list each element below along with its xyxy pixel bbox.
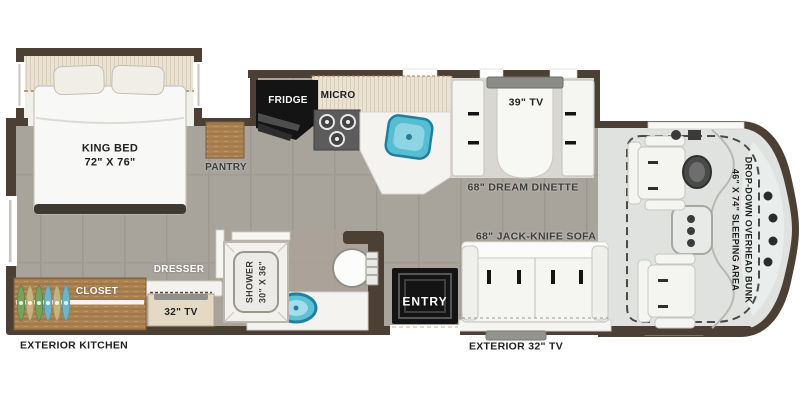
console-knob bbox=[687, 215, 695, 223]
king-bed-label: KING BED 72" X 76" bbox=[82, 142, 138, 170]
tv-32-screen bbox=[154, 294, 208, 300]
shower-label-line2: 30" X 36" bbox=[256, 261, 269, 303]
exterior-kitchen-label: EXTERIOR KITCHEN bbox=[20, 339, 128, 352]
cab-top-window bbox=[648, 122, 744, 129]
pantry-cabinet bbox=[206, 122, 244, 158]
driver-seat bbox=[628, 136, 685, 210]
bunk-label: DROP-DOWN OVERHEAD BUNK 46" X 74" SLEEPI… bbox=[729, 157, 754, 303]
shower-glass-wall bbox=[232, 232, 290, 240]
pantry-label: PANTRY bbox=[205, 162, 247, 175]
window-glass-line bbox=[9, 200, 12, 262]
shower-label-line1: SHOWER bbox=[243, 261, 256, 303]
dinette-label: 68" DREAM DINETTE bbox=[467, 181, 578, 194]
sofa-backrest bbox=[462, 242, 608, 258]
console-knob bbox=[687, 227, 695, 235]
sink-drain bbox=[294, 306, 299, 311]
pillow bbox=[54, 65, 105, 95]
bunk-label-line2: 46" X 74" SLEEPING AREA bbox=[729, 157, 742, 303]
toilet-tank bbox=[366, 252, 378, 285]
bunk-label-line1: DROP-DOWN OVERHEAD BUNK bbox=[742, 157, 755, 303]
closet-label: CLOSET bbox=[76, 286, 118, 299]
cab-vent-icon bbox=[671, 130, 681, 140]
entry-label: ENTRY bbox=[402, 295, 447, 310]
dinette-bench-left bbox=[452, 80, 484, 176]
bed-slideout-top-wall bbox=[16, 48, 202, 56]
tv39-label: 39" TV bbox=[509, 96, 544, 109]
toilet bbox=[333, 249, 371, 287]
cab-monitor-icon bbox=[688, 130, 701, 140]
sofa-armrest bbox=[592, 246, 608, 320]
fridge-label: FRIDGE bbox=[268, 95, 308, 108]
king-bed-label-line2: 72" X 76" bbox=[82, 156, 138, 170]
tv32-label: 32" TV bbox=[164, 307, 197, 320]
steering-wheel-hub bbox=[689, 162, 705, 182]
bed-foot-rail bbox=[34, 204, 186, 214]
dinette-bench-right bbox=[562, 80, 594, 176]
sofa-armrest bbox=[462, 246, 478, 320]
kitchen-sink bbox=[384, 114, 433, 160]
exterior-tv-screen bbox=[486, 331, 546, 340]
window-glass-line bbox=[19, 64, 21, 106]
sofa-label: 68" JACK-KNIFE SOFA bbox=[476, 230, 596, 243]
pillow bbox=[112, 65, 165, 95]
king-bed-label-line1: KING BED bbox=[82, 142, 138, 156]
exterior-tv-label: EXTERIOR 32" TV bbox=[469, 340, 563, 353]
dresser-label: DRESSER bbox=[154, 264, 204, 277]
bath-door bbox=[216, 230, 224, 278]
console-knob bbox=[687, 239, 695, 247]
passenger-seat bbox=[638, 254, 695, 328]
rv-floorplan: KING BED 72" X 76" PANTRY FRIDGE MICRO 3… bbox=[0, 0, 800, 400]
shower-label: SHOWER 30" X 36" bbox=[243, 261, 268, 303]
dinette-tv bbox=[487, 77, 563, 88]
window-glass-line bbox=[198, 64, 200, 106]
micro-label: MICRO bbox=[321, 90, 356, 103]
